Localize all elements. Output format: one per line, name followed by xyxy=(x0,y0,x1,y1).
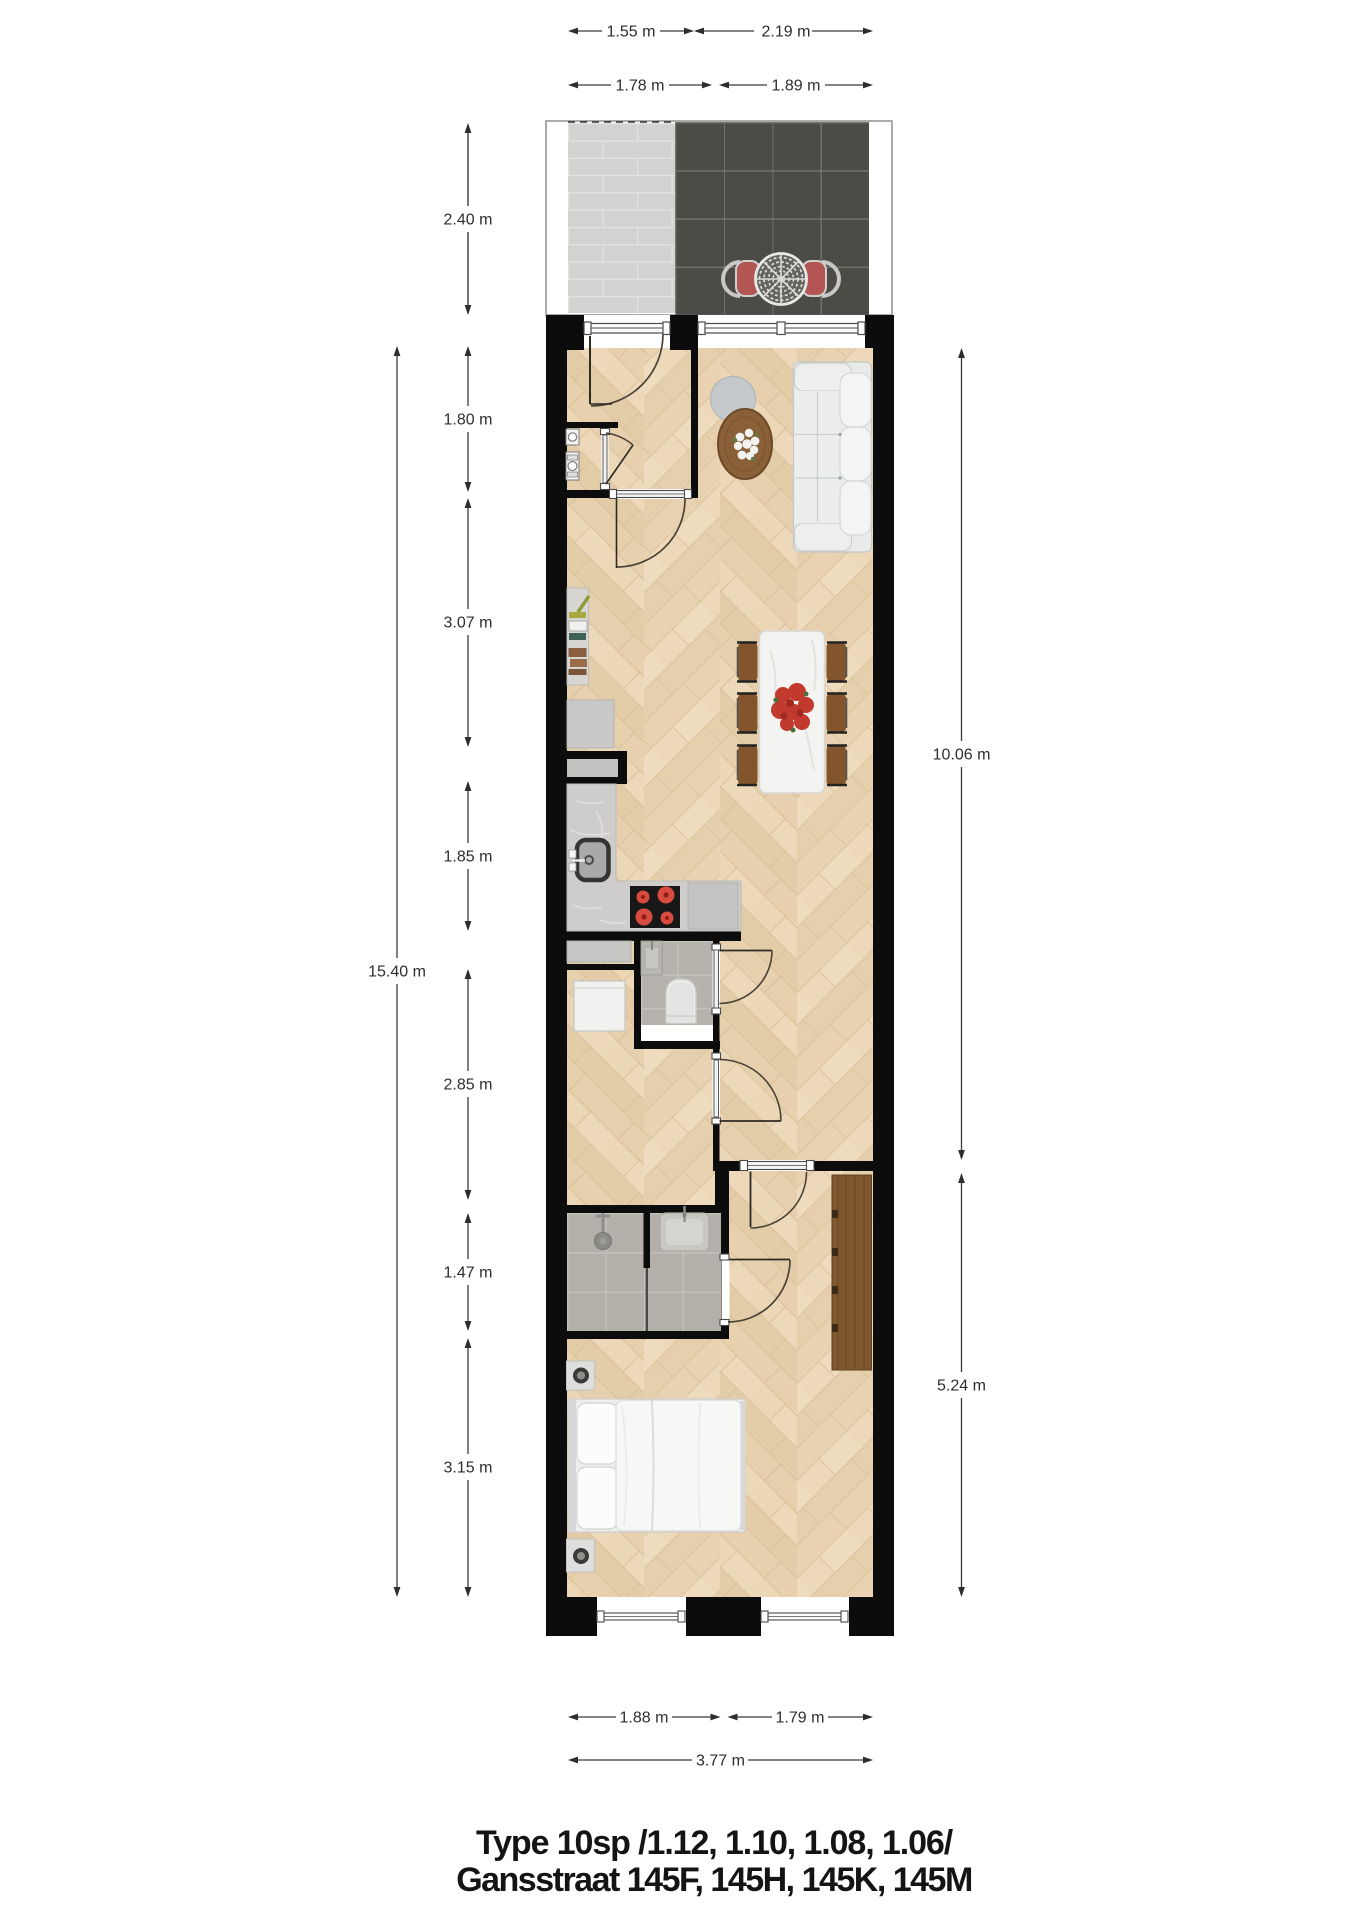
svg-text:1.47 m: 1.47 m xyxy=(444,1265,493,1282)
svg-text:3.77 m: 3.77 m xyxy=(696,1753,745,1770)
svg-text:1.78 m: 1.78 m xyxy=(616,78,665,95)
svg-text:3.07 m: 3.07 m xyxy=(444,615,493,632)
svg-text:1.55 m: 1.55 m xyxy=(607,24,656,41)
svg-text:15.40 m: 15.40 m xyxy=(368,964,426,981)
svg-text:Gansstraat 145F, 145H, 145K, 1: Gansstraat 145F, 145H, 145K, 145M xyxy=(456,1861,972,1899)
svg-text:1.80 m: 1.80 m xyxy=(444,412,493,429)
svg-text:2.19 m: 2.19 m xyxy=(762,24,811,41)
svg-text:1.79 m: 1.79 m xyxy=(776,1710,825,1727)
svg-text:3.15 m: 3.15 m xyxy=(444,1460,493,1477)
svg-text:1.88 m: 1.88 m xyxy=(620,1710,669,1727)
svg-text:2.85 m: 2.85 m xyxy=(444,1077,493,1094)
svg-text:Type 10sp /1.12, 1.10, 1.08, 1: Type 10sp /1.12, 1.10, 1.08, 1.06/ xyxy=(476,1824,954,1862)
svg-text:10.06 m: 10.06 m xyxy=(933,747,991,764)
svg-text:1.85 m: 1.85 m xyxy=(444,849,493,866)
svg-text:2.40 m: 2.40 m xyxy=(444,212,493,229)
svg-text:1.89 m: 1.89 m xyxy=(772,78,821,95)
svg-text:5.24 m: 5.24 m xyxy=(937,1378,986,1395)
